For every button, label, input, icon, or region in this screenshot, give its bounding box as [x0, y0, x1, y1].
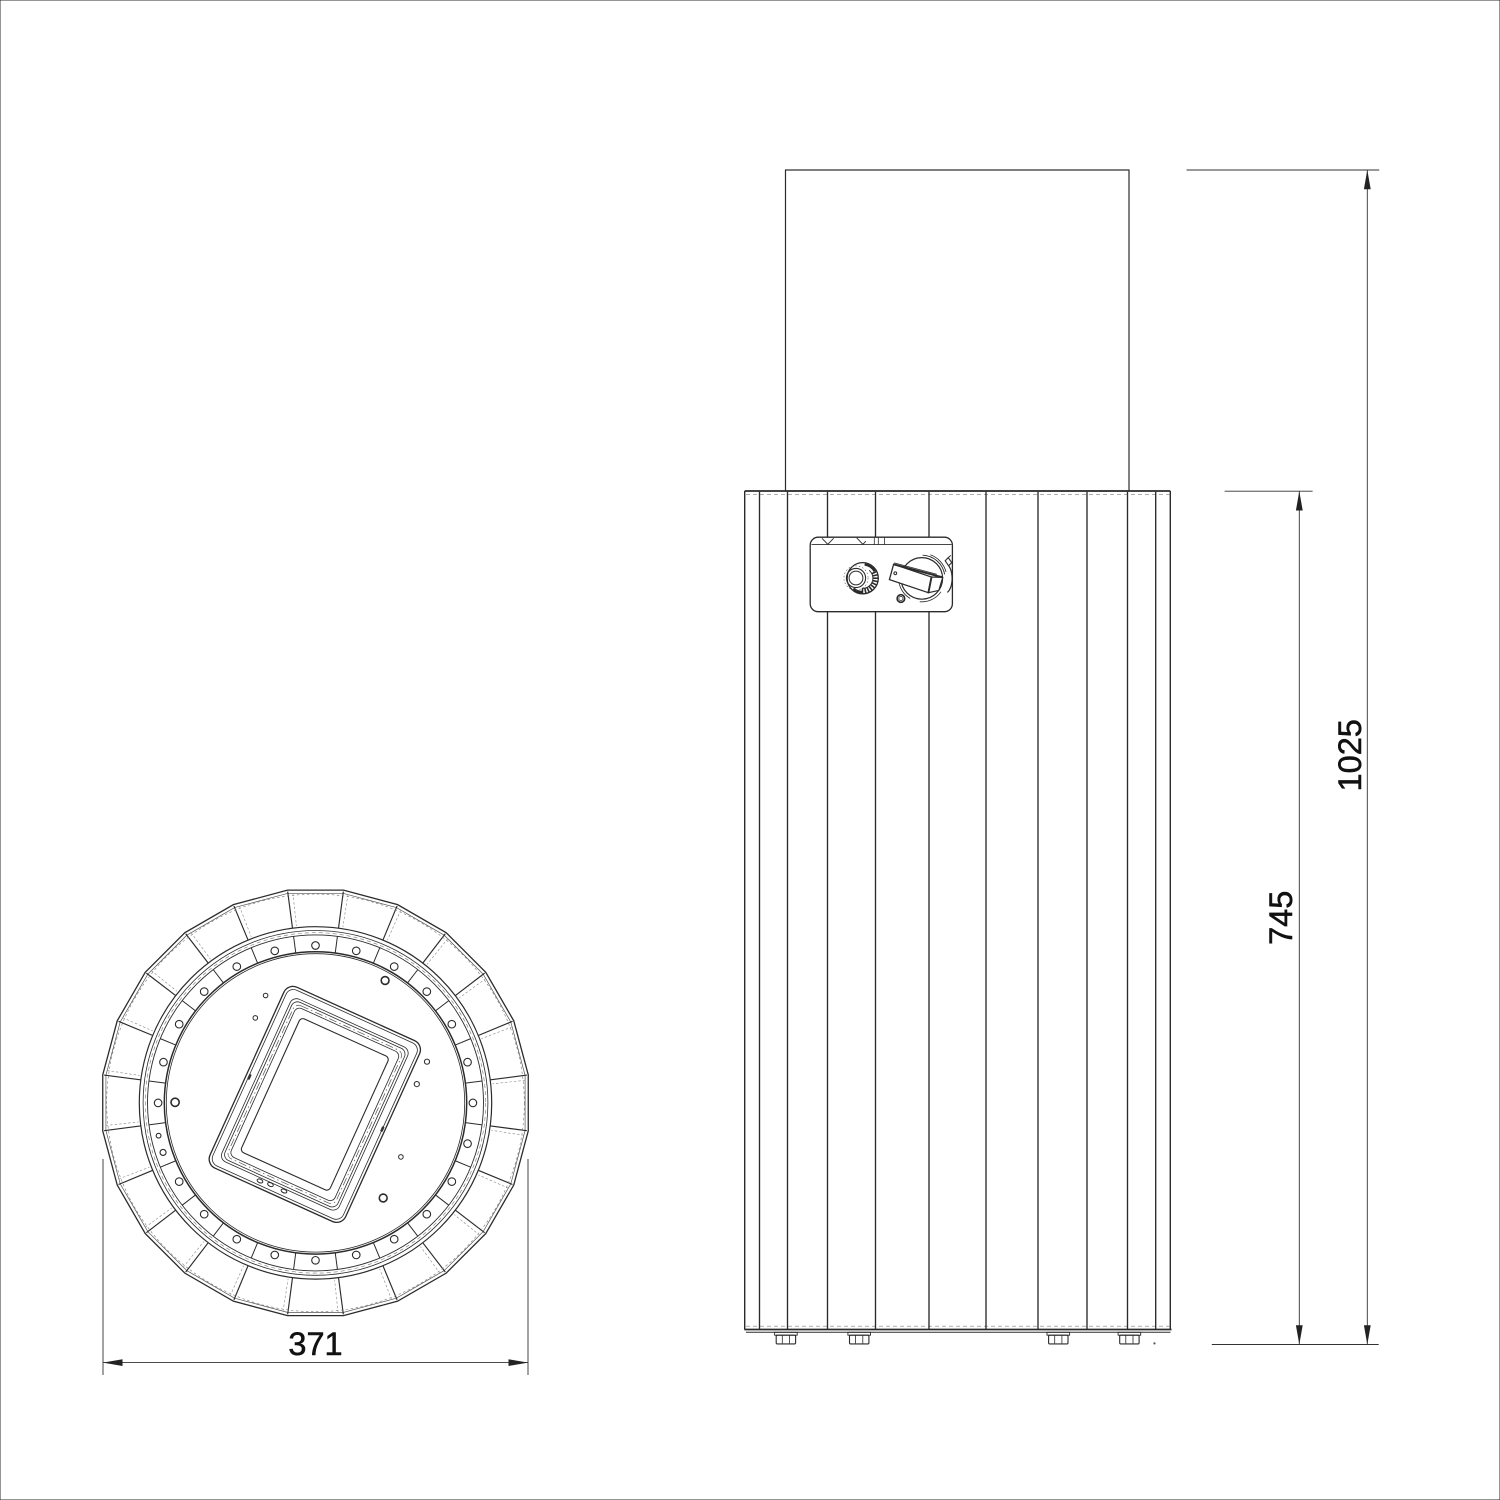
svg-text:745: 745 [1263, 891, 1299, 945]
svg-text:371: 371 [288, 1326, 342, 1362]
svg-text:1025: 1025 [1332, 719, 1368, 791]
